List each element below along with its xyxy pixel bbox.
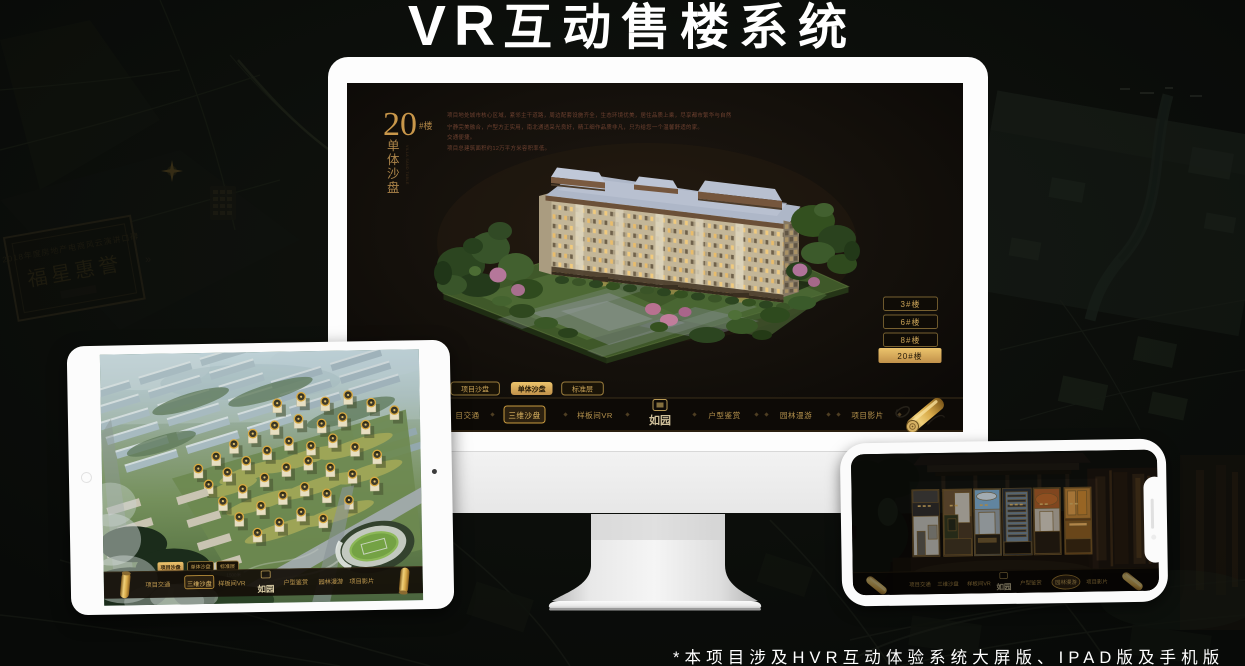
svg-text:单体沙盘: 单体沙盘 — [190, 563, 210, 570]
svg-text:项目总建筑面积约12万平方米容积率低。: 项目总建筑面积约12万平方米容积率低。 — [447, 144, 550, 152]
svg-text:户型鉴赏: 户型鉴赏 — [283, 578, 308, 586]
svg-text:三维沙盘: 三维沙盘 — [187, 580, 212, 588]
svg-text:样板间VR: 样板间VR — [577, 410, 613, 420]
svg-text:8#楼: 8#楼 — [900, 335, 920, 345]
svg-text:#楼: #楼 — [419, 120, 433, 131]
svg-text:园林漫游: 园林漫游 — [779, 410, 811, 420]
svg-text:项目影片: 项目影片 — [851, 410, 883, 420]
svg-text:样板间VR: 样板间VR — [218, 579, 246, 587]
svg-text:项目交通: 项目交通 — [145, 581, 170, 589]
svg-text:项目地处城市核心区域，紧邻主干道路，周边配套设施齐全，生态环: 项目地处城市核心区域，紧邻主干道路，周边配套设施齐全，生态环境优美，居住品质上乘… — [447, 111, 732, 119]
svg-text:VILLA SAND TABLE: VILLA SAND TABLE — [405, 145, 409, 185]
svg-text:目交通: 目交通 — [455, 410, 479, 420]
svg-text:项目影片: 项目影片 — [349, 577, 374, 585]
svg-text:交通便捷。: 交通便捷。 — [447, 133, 475, 141]
svg-text:6#楼: 6#楼 — [900, 317, 920, 327]
svg-text:标准层: 标准层 — [572, 384, 593, 393]
svg-text:3#楼: 3#楼 — [900, 299, 920, 309]
svg-text:户型鉴赏: 户型鉴赏 — [708, 410, 740, 420]
svg-text:宁静完美融合，户型方正实用，南北通透采光良好，精工细作品质非: 宁静完美融合，户型方正实用，南北通透采光良好，精工细作品质非凡，只为给您一个温馨… — [447, 123, 703, 131]
svg-text:园林漫游: 园林漫游 — [318, 578, 343, 586]
svg-text:标准层: 标准层 — [220, 563, 235, 570]
svg-text:三维沙盘: 三维沙盘 — [508, 410, 540, 420]
svg-text:体: 体 — [387, 153, 400, 167]
svg-text:项目沙盘: 项目沙盘 — [160, 564, 180, 571]
svg-text:单: 单 — [387, 139, 400, 153]
svg-text:项目沙盘: 项目沙盘 — [461, 384, 489, 393]
svg-text:20#楼: 20#楼 — [897, 351, 922, 361]
svg-text:沙: 沙 — [387, 167, 400, 181]
svg-text:盘: 盘 — [387, 180, 400, 195]
svg-text:单体沙盘: 单体沙盘 — [517, 384, 545, 393]
svg-text:»: » — [145, 254, 151, 266]
svg-text:如园: 如园 — [649, 413, 671, 427]
svg-text:如园: 如园 — [257, 584, 274, 594]
svg-text:20: 20 — [383, 106, 417, 143]
